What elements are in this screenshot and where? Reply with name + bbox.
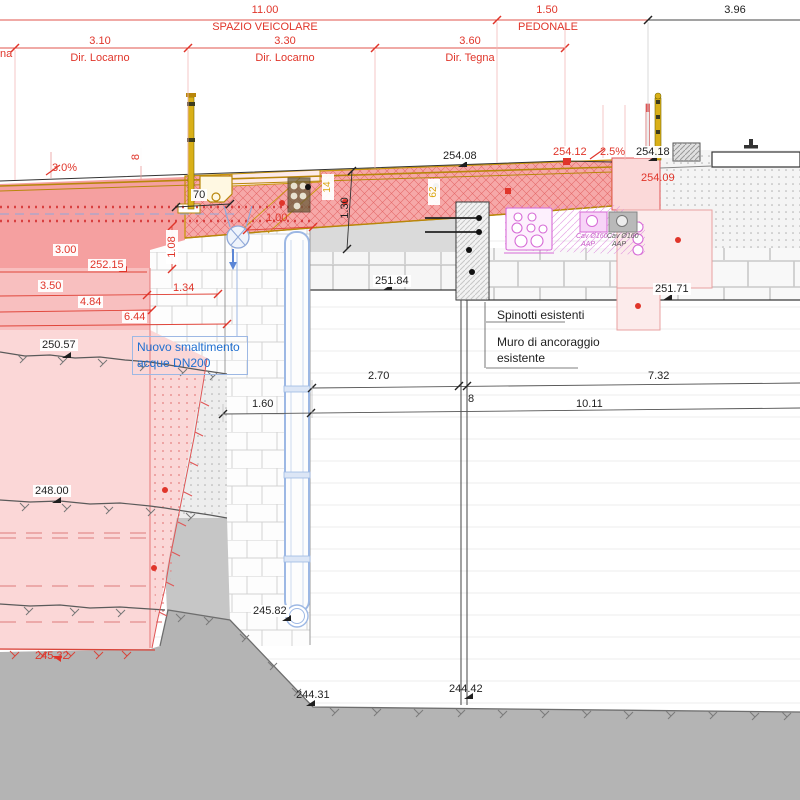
dim-3-50: 3.50: [38, 280, 63, 292]
dim-70: 70: [191, 189, 207, 201]
quota-244-42: 244.42: [449, 683, 483, 695]
quota-245-82: 245.82: [251, 605, 289, 617]
dim-6-44: 6.44: [122, 311, 147, 323]
quota-250-57: 250.57: [40, 339, 78, 351]
label-lane1-dir: Dir. Locarno: [60, 52, 140, 64]
quota-251-71: 251.71: [653, 283, 691, 295]
note-drain-line2: acque DN200: [137, 355, 210, 371]
quota-254-09: 254.09: [641, 172, 675, 184]
bridge-section-drawing: 11.00 SPAZIO VEICOLARE 1.50 PEDONALE 3.9…: [0, 0, 800, 800]
note-muro-line2: esistente: [497, 350, 545, 366]
quota-254-08: 254.08: [441, 150, 479, 162]
dim-4-84: 4.84: [78, 296, 103, 308]
note-cav-gray-l2: AAP: [612, 241, 626, 249]
dim-lane3-width: 3.60: [448, 35, 492, 47]
quota-244-31: 244.31: [296, 689, 330, 701]
section-geometry: [0, 0, 800, 800]
note-cav-magenta-l1: Cav Ø160: [576, 233, 608, 241]
label-slope-left: 3.0%: [52, 162, 77, 174]
label-lane-partial: na: [0, 48, 12, 60]
label-lane3-dir: Dir. Tegna: [432, 52, 508, 64]
dim-1-60: 1.60: [252, 398, 273, 410]
mark-14: 14: [322, 174, 334, 200]
note-cav-magenta-l2: AAP: [581, 241, 595, 249]
dim-right-width: 3.96: [713, 4, 757, 16]
dim-1-34: 1.34: [173, 282, 194, 294]
quota-254-18: 254.18: [634, 146, 672, 158]
quota-254-12: 254.12: [551, 146, 589, 158]
dim-2-70: 2.70: [368, 370, 389, 382]
dim-3-00: 3.00: [53, 244, 78, 256]
note-muro-line1: Muro di ancoraggio: [497, 334, 600, 350]
quota-248-00: 248.00: [33, 485, 71, 497]
dim-lane1-width: 3.10: [78, 35, 122, 47]
quota-252-15: 252.15: [88, 259, 126, 271]
label-lane2-dir: Dir. Locarno: [245, 52, 325, 64]
quota-251-84: 251.84: [373, 275, 411, 287]
note-cav-gray-l1: Cav Ø160: [607, 233, 639, 241]
quota-245-32: 245.32: [35, 650, 69, 662]
dim-1-30: 1.30: [339, 193, 351, 223]
dim-pedonale-width: 1.50: [525, 4, 569, 16]
dim-1-08: 1.08: [166, 230, 178, 264]
dim-lane2-width: 3.30: [263, 35, 307, 47]
dim-overall-width: 11.00: [243, 4, 287, 16]
mark-62: 62: [428, 179, 440, 205]
note-spinotti: Spinotti esistenti: [497, 307, 584, 323]
dim-8-gap: 8: [468, 393, 474, 405]
dim-1-00: 1.00: [266, 212, 287, 224]
label-pedonale: PEDONALE: [503, 21, 593, 33]
dim-7-32: 7.32: [648, 370, 669, 382]
note-drain-line1: Nuovo smaltimento: [137, 339, 240, 355]
dim-pavement-8: 8: [130, 148, 142, 166]
dim-10-11: 10.11: [576, 398, 603, 410]
label-slope-right: 2.5%: [600, 146, 625, 158]
label-spazio-veicolare: SPAZIO VEICOLARE: [188, 21, 342, 33]
